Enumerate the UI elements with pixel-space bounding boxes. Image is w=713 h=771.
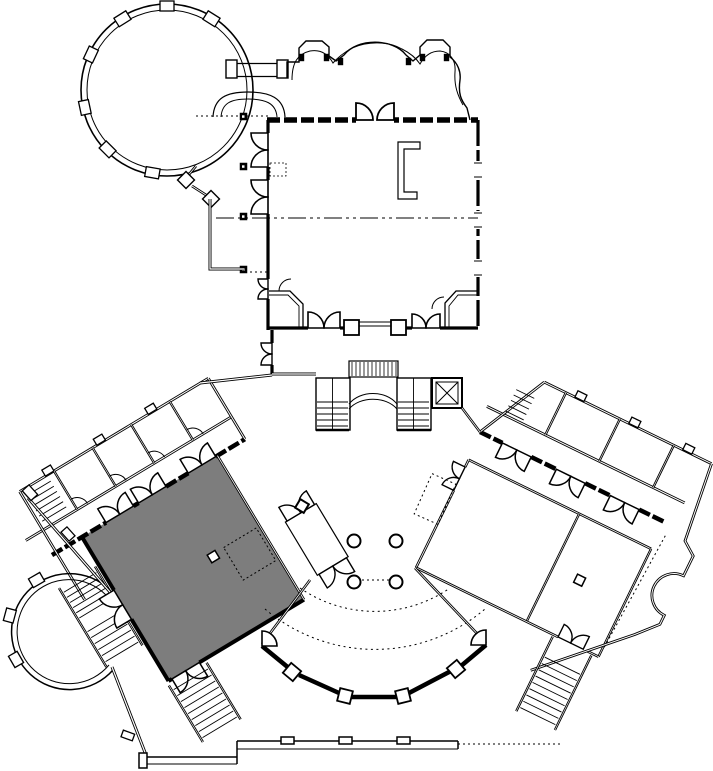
- door-leaf: [308, 312, 324, 328]
- buttress: [145, 167, 161, 179]
- terrace-wall: [200, 375, 272, 383]
- left-wing-end-wall: [208, 378, 245, 439]
- door-leaf: [549, 469, 570, 490]
- bay-outer-wall: [12, 574, 113, 690]
- buttress: [683, 443, 695, 454]
- buttress: [99, 141, 116, 158]
- north-facade: [287, 40, 470, 120]
- buttress: [3, 608, 16, 623]
- door-leaf: [448, 461, 465, 478]
- corner-room-wall: [269, 295, 299, 328]
- terrace-pier: [397, 737, 410, 744]
- buttress: [28, 572, 44, 587]
- terrace-pier: [339, 737, 352, 744]
- terrace-end-pier: [139, 753, 147, 768]
- door-leaf: [251, 180, 268, 197]
- great-hall: [216, 103, 482, 335]
- stair-steps: [520, 657, 580, 724]
- pier: [337, 688, 353, 704]
- door-leaf: [258, 279, 268, 289]
- facade-outer-wall: [287, 40, 470, 120]
- buttress: [121, 730, 135, 741]
- round-column: [348, 576, 361, 589]
- dotted-arc: [265, 609, 485, 649]
- door-leaf: [471, 630, 486, 645]
- door-leaf: [495, 443, 516, 464]
- buttress: [629, 417, 641, 428]
- buttress: [93, 434, 105, 445]
- link-pier: [226, 60, 237, 78]
- facade-pier: [420, 54, 425, 61]
- buttress: [575, 391, 587, 402]
- stair-block: [397, 378, 431, 430]
- pier: [391, 320, 406, 335]
- door-leaf: [324, 312, 340, 328]
- door-swing-arc: [432, 297, 444, 309]
- door-leaf: [251, 150, 268, 167]
- rotunda: [78, 1, 288, 207]
- pier: [344, 320, 359, 335]
- door-leaf: [603, 496, 624, 517]
- buttress: [145, 403, 157, 414]
- door-leaf: [412, 314, 426, 328]
- door-leaf: [261, 354, 272, 365]
- door-leaf: [571, 631, 590, 650]
- big-room-east-wall: [598, 549, 651, 657]
- door-leaf: [251, 133, 268, 150]
- corner-room-wall: [269, 291, 303, 328]
- door-leaf: [251, 197, 268, 214]
- door-leaf: [258, 289, 268, 299]
- facade-pier: [299, 54, 304, 61]
- facade-pier: [406, 58, 411, 65]
- pier: [178, 172, 195, 189]
- fireplace: [398, 142, 420, 199]
- screen-wall: [210, 199, 244, 269]
- room-divider-wall: [527, 514, 580, 622]
- door-leaf: [262, 631, 277, 646]
- dotted-niche: [270, 163, 286, 176]
- dotted-arc: [300, 588, 450, 611]
- facade-pier: [338, 58, 343, 65]
- column-center: [242, 165, 245, 168]
- facade-inner-wall: [292, 43, 463, 105]
- buttress: [83, 46, 98, 63]
- column-center: [242, 115, 245, 118]
- corner-room-wall: [445, 291, 477, 328]
- terrace-pier: [281, 737, 294, 744]
- facade-pier: [324, 54, 329, 61]
- round-column: [348, 535, 361, 548]
- door-leaf: [377, 103, 394, 120]
- floor-plan-svg: [0, 0, 713, 771]
- door-leaf: [426, 314, 440, 328]
- buttress: [42, 465, 54, 476]
- door-leaf: [261, 343, 272, 354]
- door-swing-arc: [279, 279, 291, 291]
- stair-vestibule: [200, 330, 480, 432]
- column-center: [242, 215, 245, 218]
- southwest-facade: [112, 667, 146, 755]
- fan-side-wall: [415, 568, 486, 643]
- facade-pier: [444, 54, 449, 61]
- round-column: [390, 576, 403, 589]
- round-column: [390, 535, 403, 548]
- corner-room-wall: [449, 295, 477, 328]
- door-leaf: [356, 103, 373, 120]
- floor-plan-page: [0, 0, 713, 771]
- link-wall: [462, 408, 480, 432]
- arched-opening: [349, 399, 397, 409]
- buttress: [78, 100, 91, 116]
- column: [574, 574, 586, 586]
- stair-block: [316, 378, 350, 430]
- buttress: [160, 1, 174, 11]
- pier: [395, 688, 411, 704]
